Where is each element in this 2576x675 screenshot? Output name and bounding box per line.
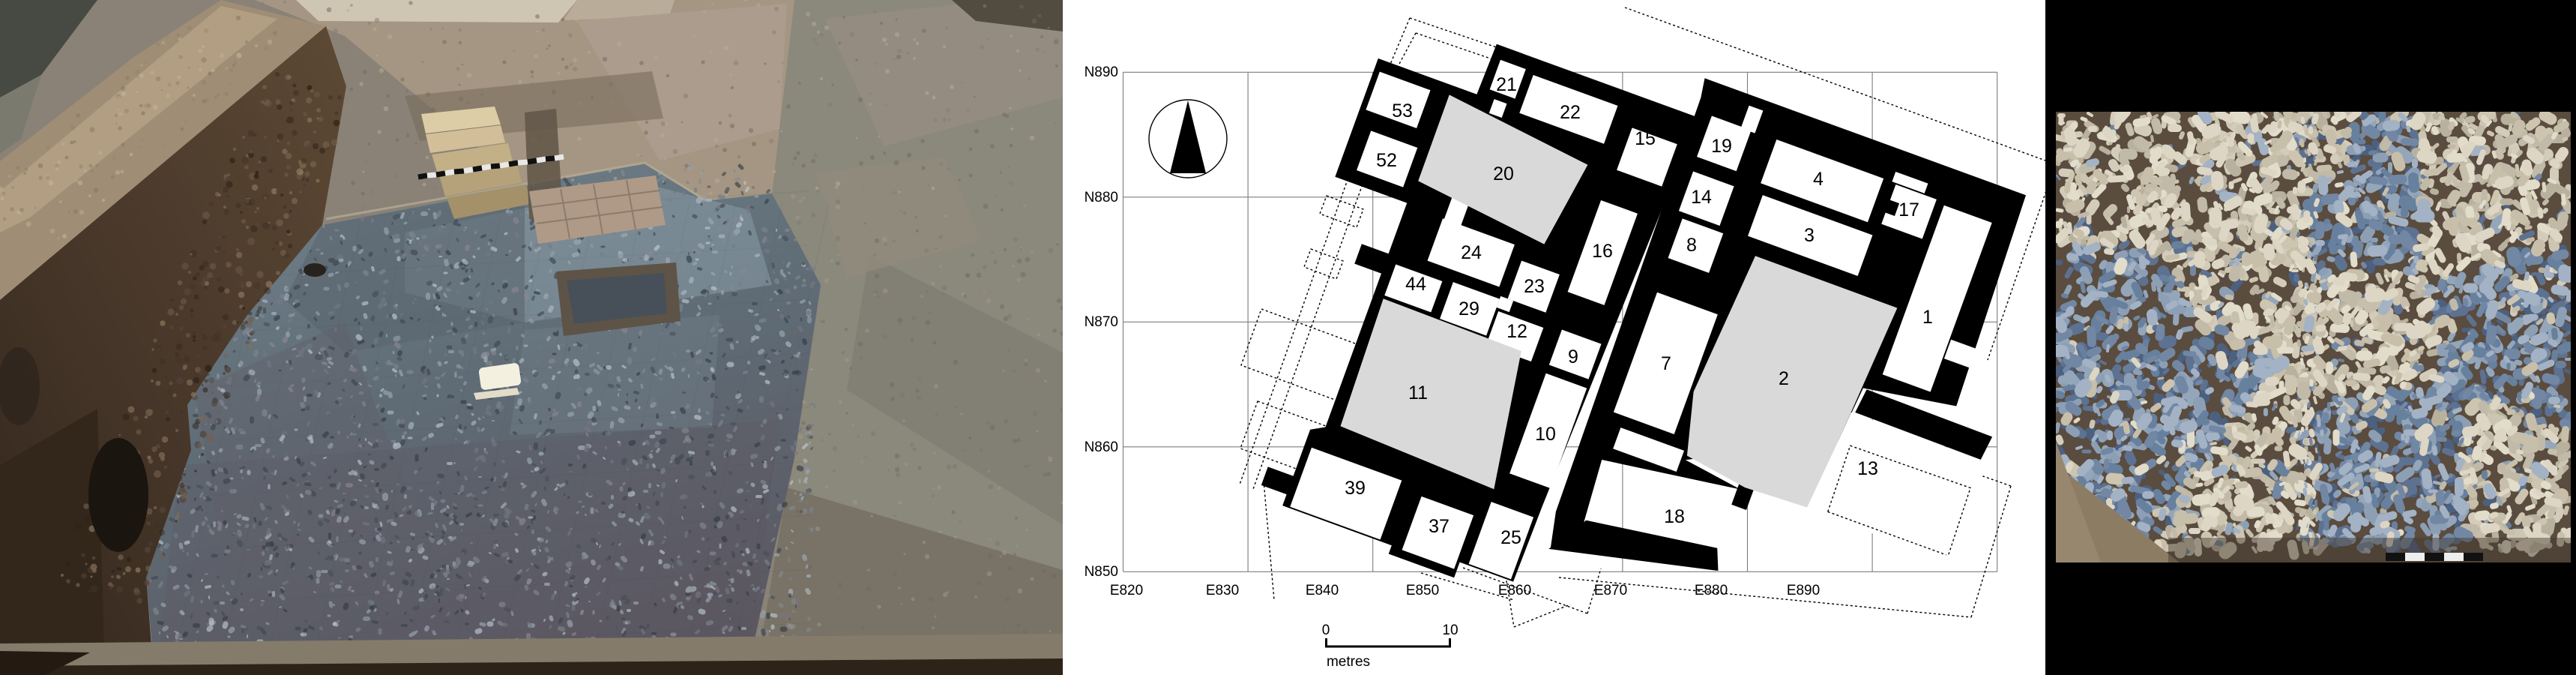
svg-text:22: 22 bbox=[1560, 102, 1581, 123]
svg-text:N860: N860 bbox=[1085, 439, 1118, 455]
svg-text:52: 52 bbox=[1376, 150, 1397, 171]
svg-text:1: 1 bbox=[1922, 307, 1933, 328]
svg-text:16: 16 bbox=[1592, 241, 1613, 262]
svg-text:25: 25 bbox=[1500, 527, 1521, 548]
svg-text:24: 24 bbox=[1461, 242, 1482, 263]
svg-text:8: 8 bbox=[1686, 235, 1697, 256]
svg-text:21: 21 bbox=[1496, 74, 1517, 95]
svg-text:E820: E820 bbox=[1110, 583, 1143, 598]
svg-text:metres: metres bbox=[1327, 654, 1370, 670]
svg-text:N890: N890 bbox=[1085, 64, 1118, 80]
svg-text:18: 18 bbox=[1664, 506, 1685, 527]
svg-text:3: 3 bbox=[1804, 225, 1815, 246]
svg-text:13: 13 bbox=[1857, 458, 1878, 479]
svg-text:7: 7 bbox=[1661, 353, 1671, 374]
svg-text:E840: E840 bbox=[1306, 583, 1339, 598]
svg-text:10: 10 bbox=[1442, 622, 1458, 638]
svg-text:14: 14 bbox=[1691, 187, 1712, 208]
svg-text:12: 12 bbox=[1506, 321, 1527, 342]
svg-text:11: 11 bbox=[1408, 382, 1428, 403]
svg-text:E890: E890 bbox=[1787, 583, 1820, 598]
svg-text:E850: E850 bbox=[1406, 583, 1439, 598]
svg-text:15: 15 bbox=[1635, 128, 1656, 149]
svg-text:N850: N850 bbox=[1085, 564, 1118, 580]
svg-text:0: 0 bbox=[1322, 622, 1330, 638]
svg-text:E870: E870 bbox=[1594, 583, 1627, 598]
svg-text:N880: N880 bbox=[1085, 190, 1118, 205]
svg-text:9: 9 bbox=[1568, 346, 1578, 367]
svg-text:N870: N870 bbox=[1085, 314, 1118, 330]
svg-text:4: 4 bbox=[1813, 169, 1824, 190]
svg-text:37: 37 bbox=[1429, 516, 1450, 537]
svg-text:10: 10 bbox=[1535, 424, 1556, 445]
svg-text:E830: E830 bbox=[1206, 583, 1239, 598]
svg-text:19: 19 bbox=[1711, 136, 1732, 157]
svg-text:53: 53 bbox=[1392, 100, 1413, 121]
svg-text:29: 29 bbox=[1459, 298, 1479, 319]
svg-text:44: 44 bbox=[1405, 274, 1426, 295]
svg-text:23: 23 bbox=[1524, 276, 1545, 297]
svg-text:39: 39 bbox=[1345, 478, 1366, 499]
svg-text:20: 20 bbox=[1493, 163, 1514, 184]
svg-text:2: 2 bbox=[1779, 368, 1789, 389]
svg-text:E860: E860 bbox=[1498, 583, 1531, 598]
svg-text:17: 17 bbox=[1898, 199, 1919, 220]
